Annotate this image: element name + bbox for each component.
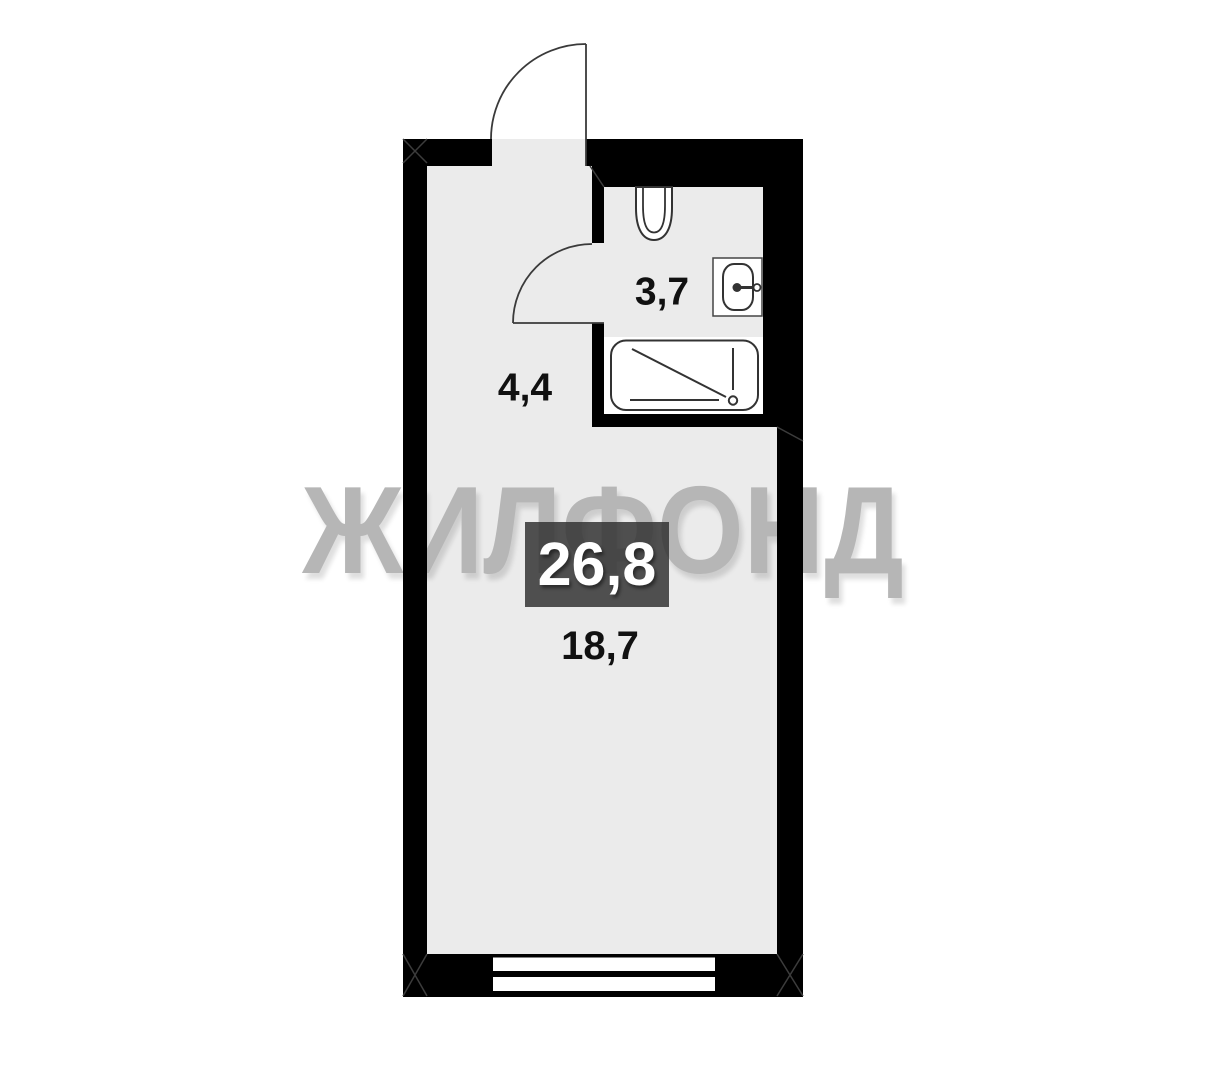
bathroom-area-label: 3,7 [635,273,689,312]
interior-door [513,244,604,323]
wall-top-middle-segment [586,139,604,166]
sink-icon [713,258,762,316]
bathtub-drain [729,396,737,404]
window-glazing-outer [493,958,715,972]
sink-faucet-head [754,284,761,291]
interior-door-swing-arc [513,244,592,323]
total-area-value: 26,8 [538,534,657,595]
wall-right-main [777,427,803,997]
entrance-door [491,44,586,166]
total-area-badge: 26,8 [525,522,669,607]
wall-bathroom-partition-lower [592,323,604,427]
floorplan-canvas: ЖИЛФОНД [0,0,1206,1080]
wall-left [403,139,427,997]
window-glazing-inner [493,977,715,991]
toilet-icon [636,187,672,240]
living-room-area-label: 18,7 [561,626,639,666]
entrance-door-swing-arc [491,44,586,139]
hallway-area-label: 4,4 [498,369,552,408]
wall-right-bathroom [763,139,803,427]
bathtub-icon [604,337,763,414]
